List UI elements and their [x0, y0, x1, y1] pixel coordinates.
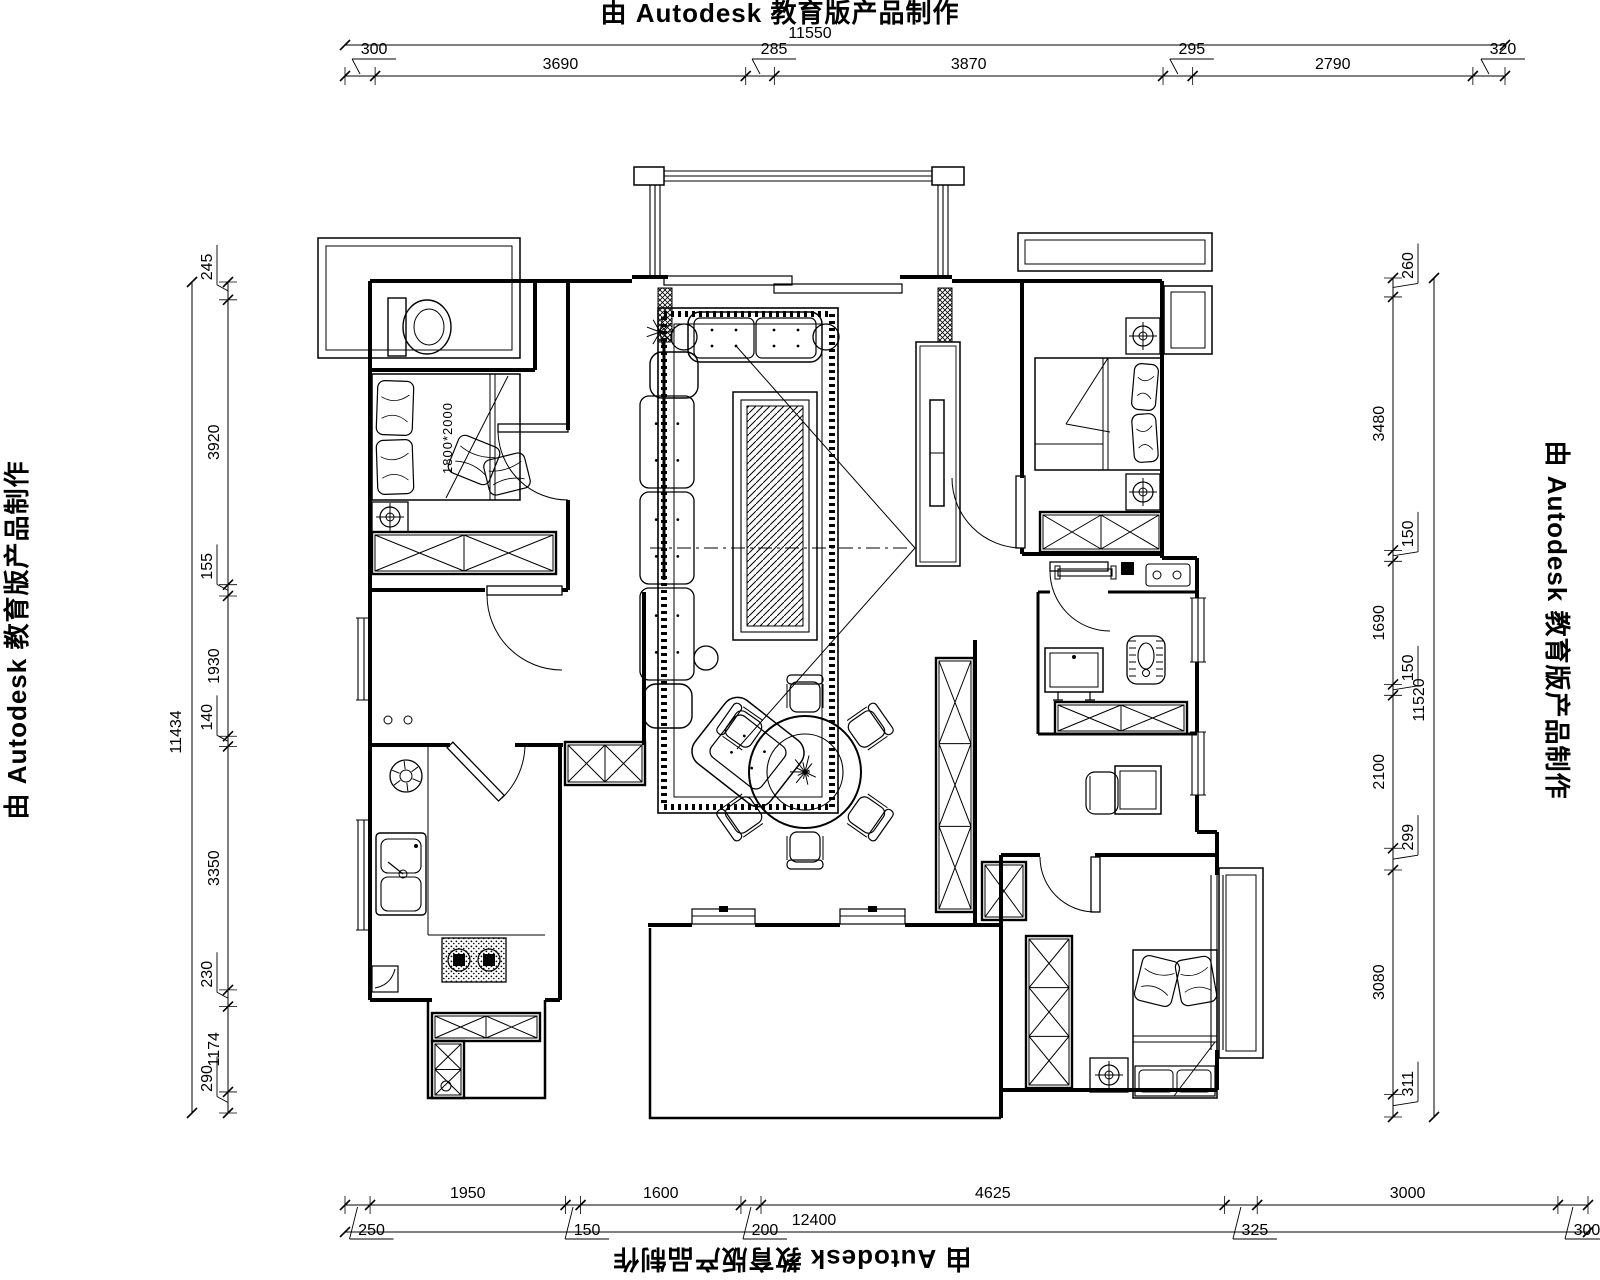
dim-label: 11520: [1411, 678, 1428, 721]
balcony-cabinet-v: [432, 1041, 464, 1098]
left-dimension-chain: 245392015519301403350230117429011434: [168, 245, 237, 1118]
dim-label: 4625: [975, 1185, 1011, 1202]
bedroom2-wardrobe: [1040, 512, 1162, 552]
dim-label: 1174: [206, 1032, 223, 1067]
dim-label: 2790: [1315, 56, 1351, 73]
watermark-top: 由 Autodesk 教育版产品制作: [601, 0, 960, 28]
dining-cabinet: [936, 658, 974, 912]
dim-label: 290: [199, 1065, 216, 1092]
pillow: [376, 380, 414, 435]
pillow: [1131, 363, 1159, 411]
bedroom3-group: [1040, 857, 1218, 1098]
coffee-table: [733, 392, 817, 640]
table-lamp: [376, 503, 404, 531]
kitchen-door: [447, 742, 504, 801]
table-lamp: [1095, 1061, 1123, 1089]
dim-label: 1930: [206, 648, 223, 684]
dim-label: 300: [1574, 1222, 1600, 1239]
bedroom2-group: [952, 318, 1162, 548]
pillow: [1133, 954, 1181, 1008]
dim-label: 230: [199, 961, 216, 988]
dimensions-layer: 3003690285387029527903201155025019501501…: [168, 25, 1600, 1239]
dim-label: 320: [1490, 41, 1517, 58]
dining-chair: [787, 675, 823, 712]
dim-label: 260: [1400, 252, 1417, 279]
floorplan-svg: 由 Autodesk 教育版产品制作 由 Autodesk 教育版产品制作 由 …: [0, 0, 1600, 1280]
bedroom1-group: [372, 298, 568, 532]
dim-label: 11550: [788, 25, 831, 42]
dim-label: 150: [1400, 520, 1417, 547]
bedroom3-cabinet: [982, 862, 1026, 920]
dim-label: 200: [752, 1222, 779, 1239]
study-group: [384, 586, 562, 724]
dim-label: 3000: [1390, 1185, 1426, 1202]
dim-label: 150: [1400, 654, 1417, 681]
dim-label: 2100: [1371, 754, 1388, 790]
bath-cabinet: [1055, 702, 1187, 734]
dim-label: 150: [574, 1222, 601, 1239]
table-lamp: [1129, 322, 1157, 350]
dim-label: 245: [199, 253, 216, 280]
dining-chair: [844, 792, 895, 843]
watermark-left: 由 Autodesk 教育版产品制作: [2, 461, 32, 820]
squat-toilet: [1127, 636, 1165, 684]
dim-label: 3080: [1371, 964, 1388, 1000]
dim-label: 295: [1178, 41, 1205, 58]
dining-chair: [844, 702, 895, 753]
dim-label: 1950: [450, 1185, 486, 1202]
dim-label: 3920: [206, 424, 223, 460]
pillow: [1131, 413, 1158, 463]
bedroom3-wardrobe: [1026, 936, 1072, 1088]
stove: [442, 938, 506, 982]
dim-label: 3870: [951, 56, 987, 73]
dim-label: 1690: [1371, 605, 1388, 641]
balcony-cabinet-h: [432, 1013, 540, 1041]
watermark-bottom: 由 Autodesk 教育版产品制作: [613, 1244, 972, 1274]
dim-label: 3480: [1371, 406, 1388, 442]
dim-label: 12400: [792, 1212, 837, 1229]
dim-label: 140: [199, 704, 216, 731]
dining-group: [715, 675, 895, 869]
living-room-group: [640, 308, 960, 813]
desk-room-group: [1086, 766, 1161, 814]
dim-label: 3350: [206, 850, 223, 886]
hall-cabinet: [565, 742, 645, 785]
dim-label: 155: [199, 553, 216, 580]
bed-size-label: 1800*2000: [440, 402, 455, 474]
dim-label: 3690: [543, 56, 579, 73]
bathroom-group: [1045, 562, 1190, 700]
dim-label: 11434: [168, 710, 185, 753]
top-dimension-chain: 30036902853870295279032011550: [340, 25, 1525, 85]
kitchen-sink: [376, 833, 426, 915]
dim-label: 300: [361, 41, 388, 58]
dim-label: 311: [1400, 1071, 1417, 1097]
kitchen-group: [372, 742, 545, 992]
watermark-right: 由 Autodesk 教育版产品制作: [1542, 441, 1572, 800]
pillow: [376, 439, 414, 494]
dim-label: 285: [761, 41, 788, 58]
right-dimension-chain: 260348015016901502100299308031111520: [1371, 243, 1439, 1122]
tv-cabinet: [916, 342, 960, 566]
dim-label: 325: [1242, 1222, 1269, 1239]
furniture-layer: [372, 298, 1218, 1098]
dining-chair: [787, 832, 823, 869]
dim-label: 250: [358, 1222, 385, 1239]
bedroom1-wardrobe: [372, 532, 556, 574]
dim-label: 1600: [643, 1185, 679, 1202]
bottom-dimension-chain: 250195015016002004625325300030012400: [340, 1185, 1600, 1239]
floorplan-canvas: 由 Autodesk 教育版产品制作 由 Autodesk 教育版产品制作 由 …: [0, 0, 1600, 1280]
dim-label: 299: [1400, 824, 1417, 851]
table-lamp: [1129, 478, 1157, 506]
dining-chair: [715, 792, 766, 843]
